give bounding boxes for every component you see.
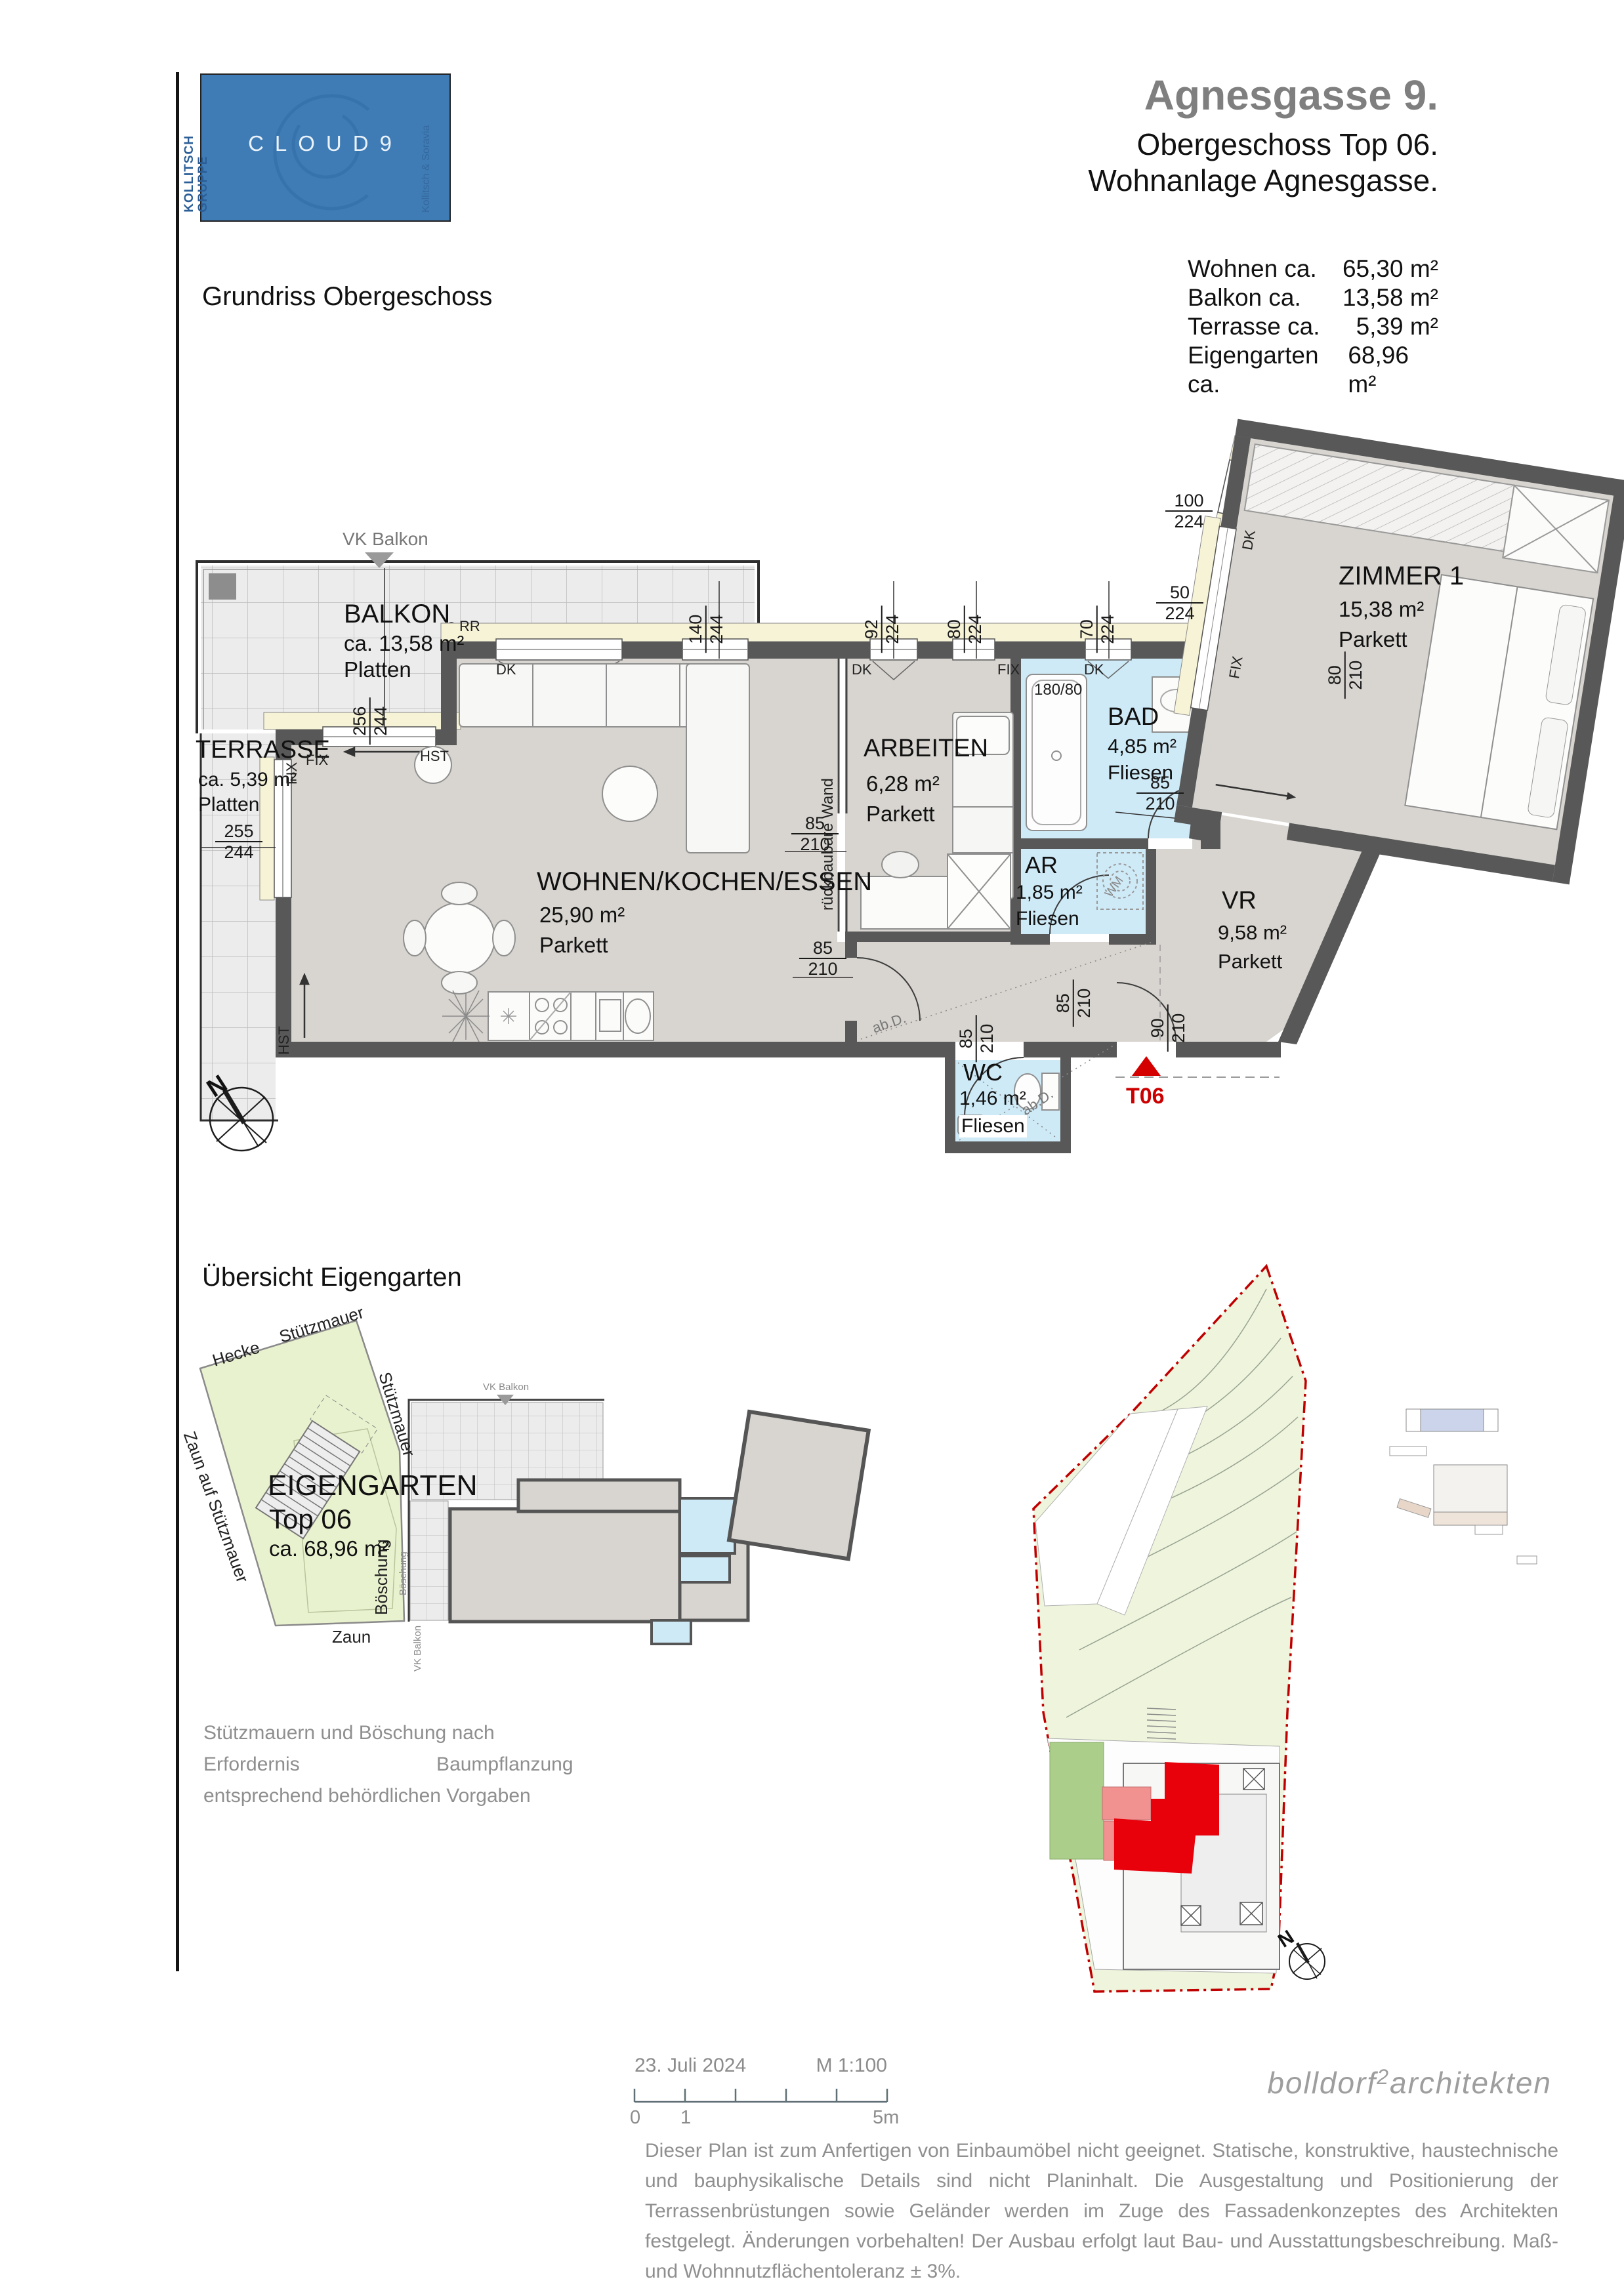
bathtub-size-label: 180/80: [1034, 681, 1082, 699]
dim-256-244: 256244: [350, 697, 390, 745]
dim-70-224: 70224: [1077, 605, 1117, 653]
eigengarten-top: Top 06: [269, 1504, 352, 1535]
dim-a: 256: [350, 697, 371, 745]
dim-b: 210: [977, 1015, 997, 1062]
eigengarten-area: ca. 68,96 m²: [269, 1536, 389, 1561]
dim-b: 210: [1136, 794, 1184, 813]
floor-plan-drawing: [0, 0, 1624, 2296]
scale-bar: [635, 2089, 887, 2102]
dk-label-2: DK: [852, 661, 872, 678]
dim-b: 244: [371, 697, 390, 745]
dim-255-244: 255244: [215, 821, 262, 862]
room-wohnen-area: 25,90 m²: [539, 903, 625, 928]
dim-a: 50: [1156, 583, 1203, 604]
dim-b: 210: [1169, 1004, 1188, 1052]
vk-balkon-mini-label: VK Balkon: [483, 1382, 529, 1393]
dk-label-1: DK: [496, 661, 516, 678]
room-balkon-name: BALKON: [344, 600, 450, 629]
room-ar-floor: Fliesen: [1016, 908, 1079, 930]
room-arbeiten-area: 6,28 m²: [866, 771, 940, 796]
dim-80-210-zimmer: 80210: [1325, 651, 1365, 699]
dim-50-224: 50224: [1156, 583, 1203, 623]
fix-label-1: FIX: [997, 661, 1020, 678]
dim-b: 244: [215, 842, 262, 862]
boeschung-small-label: Böschung: [398, 1551, 409, 1595]
room-vr-area: 9,58 m²: [1218, 921, 1287, 945]
dim-a: 85: [799, 938, 846, 959]
hst-label-1: HST: [420, 748, 449, 765]
room-arbeiten-floor: Parkett: [866, 802, 935, 827]
dim-90-210-entry: 90210: [1148, 1004, 1188, 1052]
room-zimmer1-name: ZIMMER 1: [1339, 562, 1464, 591]
room-terrasse-floor: Platten: [198, 794, 259, 816]
plan-sheet: CLOUD9 KOLLITSCH GRUPPE Kollitsch & Sora…: [0, 0, 1624, 2296]
room-wc-name: WC: [963, 1059, 1003, 1086]
dim-a: 85: [1053, 979, 1074, 1027]
room-bad-area: 4,85 m²: [1108, 735, 1176, 758]
dim-92-224: 92224: [862, 605, 902, 653]
dk-label-4: DK: [1239, 529, 1259, 552]
room-ar-area: 1,85 m²: [1016, 882, 1083, 904]
dim-85-210-wohnen: 85210: [799, 938, 846, 979]
fix-label-3: FIX: [306, 752, 328, 769]
dim-85-210-ar: 85210: [1053, 979, 1094, 1027]
room-wc-floor: Fliesen: [959, 1115, 1027, 1138]
dim-140-244: 140244: [686, 605, 726, 653]
dim-a: 100: [1165, 491, 1213, 512]
dim-b: 210: [791, 834, 839, 854]
dim-a: 80: [944, 605, 965, 653]
vk-balkon-small-label: VK Balkon: [412, 1626, 423, 1671]
dim-b: 244: [707, 605, 726, 653]
dim-85-210-wand: 85210: [791, 813, 839, 854]
room-wohnen-floor: Parkett: [539, 933, 608, 958]
room-terrasse-area: ca. 5,39 m²: [198, 769, 297, 791]
room-bad-name: BAD: [1108, 703, 1159, 731]
room-vr-floor: Parkett: [1218, 950, 1282, 974]
dim-a: 80: [1325, 651, 1346, 699]
dim-a: 85: [791, 813, 839, 834]
dim-a: 85: [1136, 773, 1184, 794]
room-balkon-area: ca. 13,58 m²: [344, 631, 464, 656]
dim-b: 224: [965, 605, 985, 653]
dim-b: 224: [883, 605, 902, 653]
dim-a: 92: [862, 605, 883, 653]
entry-marker-triangle: [1132, 1056, 1161, 1076]
dim-a: 70: [1077, 605, 1098, 653]
zaun-label: Zaun: [332, 1627, 371, 1647]
dim-b: 210: [799, 959, 846, 979]
dim-85-210-bad: 85210: [1136, 773, 1184, 813]
hst-label-2: HST: [276, 1026, 293, 1055]
dk-label-3: DK: [1084, 661, 1104, 678]
room-vr-name: VR: [1222, 887, 1257, 915]
dim-100-224: 100224: [1165, 491, 1213, 531]
dim-80-224: 80224: [944, 605, 985, 653]
dim-85-210-wc: 85210: [956, 1015, 997, 1062]
dim-b: 224: [1165, 512, 1213, 531]
fix-label-2: FIX: [283, 762, 301, 785]
site-plan-drawing: [1033, 1266, 1537, 1992]
room-balkon-floor: Platten: [344, 657, 411, 682]
room-ar-name: AR: [1025, 851, 1058, 879]
room-arbeiten-name: ARBEITEN: [864, 735, 988, 763]
dim-a: 85: [956, 1015, 977, 1062]
room-zimmer1-area: 15,38 m²: [1339, 597, 1424, 622]
rr-label: RR: [459, 618, 480, 635]
dim-b: 224: [1156, 604, 1203, 623]
room-zimmer1-floor: Parkett: [1339, 627, 1407, 652]
unit-number-label: T06: [1126, 1084, 1165, 1109]
dim-a: 255: [215, 821, 262, 842]
vk-balkon-label: VK Balkon: [343, 529, 428, 550]
dim-b: 210: [1346, 651, 1365, 699]
dim-a: 140: [686, 605, 707, 653]
eigengarten-name: EIGENGARTEN: [268, 1469, 477, 1502]
dim-b: 210: [1074, 979, 1094, 1027]
dim-a: 90: [1148, 1004, 1169, 1052]
room-wc-area: 1,46 m²: [959, 1088, 1026, 1110]
dim-b: 224: [1098, 605, 1117, 653]
